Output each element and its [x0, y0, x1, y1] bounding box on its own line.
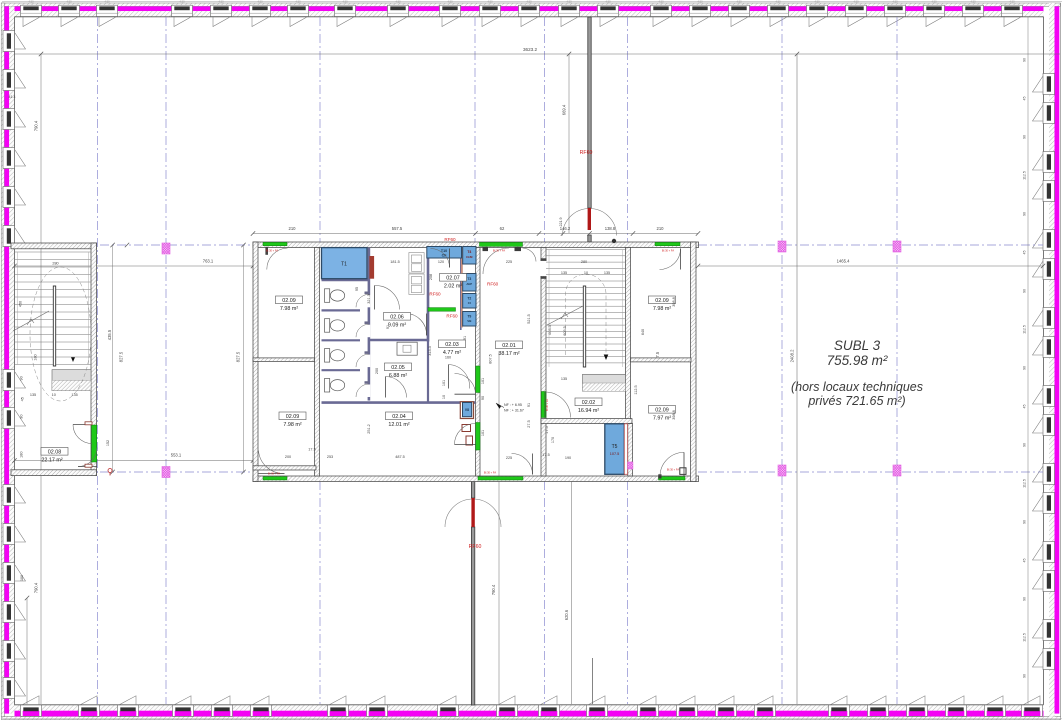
svg-text:4.50: 4.50 — [1009, 0, 1015, 4]
svg-text:90: 90 — [20, 414, 24, 418]
svg-text:4.50: 4.50 — [566, 0, 572, 4]
svg-text:45: 45 — [1023, 97, 1027, 101]
svg-text:7.98 m²: 7.98 m² — [280, 306, 298, 312]
svg-text:02.08: 02.08 — [48, 449, 62, 455]
svg-text:90: 90 — [1023, 58, 1027, 62]
svg-text:640: 640 — [641, 329, 645, 335]
svg-text:BI.30 + FA: BI.30 + FA — [484, 471, 496, 475]
svg-text:603.5: 603.5 — [563, 326, 567, 336]
svg-text:669.4: 669.4 — [562, 104, 567, 115]
svg-text:620.6: 620.6 — [564, 609, 569, 620]
svg-text:02.04: 02.04 — [392, 414, 406, 420]
svg-text:02.06: 02.06 — [390, 314, 404, 320]
svg-text:221.9: 221.9 — [559, 218, 563, 227]
svg-text:AEP: AEP — [466, 282, 472, 286]
svg-text:112.5: 112.5 — [1023, 633, 1027, 642]
svg-text:91: 91 — [527, 403, 531, 407]
svg-text:02.09: 02.09 — [655, 298, 669, 304]
svg-text:521.5: 521.5 — [527, 314, 531, 324]
svg-text:4.50: 4.50 — [931, 0, 937, 4]
svg-text:4.50: 4.50 — [257, 0, 263, 4]
svg-text:91: 91 — [386, 325, 390, 329]
svg-text:790.4: 790.4 — [491, 584, 496, 595]
svg-text:02.09: 02.09 — [282, 298, 296, 304]
svg-text:4.50: 4.50 — [395, 0, 401, 4]
svg-text:4.50: 4.50 — [658, 0, 664, 4]
svg-text:763.1: 763.1 — [203, 259, 214, 264]
svg-text:138.8: 138.8 — [605, 226, 616, 231]
svg-text:4.50: 4.50 — [295, 0, 301, 4]
svg-text:210: 210 — [289, 226, 297, 231]
svg-text:90: 90 — [20, 376, 24, 380]
svg-text:91: 91 — [463, 336, 467, 340]
svg-text:90: 90 — [1023, 674, 1027, 678]
svg-text:T5: T5 — [612, 444, 618, 450]
svg-text:RF60: RF60 — [429, 292, 441, 297]
svg-text:CLIM: CLIM — [466, 255, 472, 259]
svg-text:BI.30 + FA: BI.30 + FA — [667, 468, 679, 472]
svg-text:BI.30 + FA: BI.30 + FA — [493, 249, 505, 253]
svg-text:(hors locaux techniques: (hors locaux techniques — [791, 380, 923, 394]
svg-text:90: 90 — [1023, 289, 1027, 293]
svg-text:107.5: 107.5 — [610, 452, 620, 456]
svg-text:101: 101 — [481, 430, 485, 436]
svg-text:02.03: 02.03 — [445, 342, 459, 348]
svg-text:4.50: 4.50 — [775, 0, 781, 4]
svg-text:200: 200 — [375, 368, 379, 374]
svg-text:RF60: RF60 — [446, 314, 458, 319]
svg-text:4.50: 4.50 — [28, 0, 34, 4]
svg-text:398.8: 398.8 — [672, 297, 676, 307]
svg-text:135: 135 — [71, 393, 77, 397]
svg-text:251.2: 251.2 — [367, 424, 371, 434]
svg-text:603.5: 603.5 — [548, 325, 552, 335]
svg-text:487.5: 487.5 — [395, 455, 405, 459]
svg-text:2.02 m²: 2.02 m² — [444, 284, 462, 290]
svg-text:313.3: 313.3 — [428, 346, 432, 356]
svg-text:17.5: 17.5 — [545, 426, 549, 433]
svg-text:1465.4: 1465.4 — [837, 259, 850, 264]
svg-text:90: 90 — [1023, 366, 1027, 370]
svg-text:4.50: 4.50 — [66, 0, 72, 4]
svg-text:553.1: 553.1 — [171, 453, 182, 458]
svg-text:135: 135 — [604, 271, 610, 275]
svg-text:T4: T4 — [467, 250, 471, 254]
svg-text:180: 180 — [34, 354, 38, 360]
svg-text:4.50: 4.50 — [526, 0, 532, 4]
svg-text:557.5: 557.5 — [392, 226, 403, 231]
svg-text:95: 95 — [355, 287, 359, 291]
svg-text:135: 135 — [561, 377, 567, 381]
svg-text:10: 10 — [442, 395, 446, 399]
svg-text:4.50: 4.50 — [179, 0, 185, 4]
svg-text:4.50: 4.50 — [970, 0, 976, 4]
svg-text:181.5: 181.5 — [390, 260, 400, 264]
svg-text:7.98 m²: 7.98 m² — [653, 306, 671, 312]
svg-text:4.50: 4.50 — [736, 0, 742, 4]
svg-text:02.02: 02.02 — [582, 400, 596, 406]
svg-text:T1: T1 — [341, 262, 347, 268]
svg-text:807.5: 807.5 — [489, 354, 493, 364]
svg-text:135: 135 — [30, 393, 36, 397]
svg-text:62: 62 — [500, 226, 505, 231]
svg-text:7.98 m²: 7.98 m² — [283, 422, 301, 428]
svg-text:225: 225 — [506, 456, 512, 460]
svg-text:02.05: 02.05 — [391, 365, 405, 371]
svg-text:90: 90 — [481, 396, 485, 400]
svg-text:02.01: 02.01 — [502, 343, 516, 349]
svg-text:4.50: 4.50 — [447, 0, 453, 4]
svg-text:CI: CI — [468, 301, 471, 305]
svg-text:BI.30 + FA: BI.30 + FA — [662, 249, 674, 253]
svg-text:4.50: 4.50 — [697, 0, 703, 4]
svg-text:RF60: RF60 — [444, 237, 456, 242]
svg-text:SUBL 3: SUBL 3 — [834, 338, 881, 353]
svg-text:T2: T2 — [467, 297, 471, 301]
svg-text:NF : + 6.95: NF : + 6.95 — [504, 403, 522, 407]
svg-text:101: 101 — [481, 378, 485, 384]
svg-text:41.4: 41.4 — [9, 95, 16, 99]
svg-text:45: 45 — [1023, 559, 1027, 563]
svg-text:6.88 m²: 6.88 m² — [389, 373, 407, 379]
svg-text:112.5: 112.5 — [634, 385, 638, 394]
svg-text:BI.30 + FA: BI.30 + FA — [266, 249, 278, 253]
svg-text:16.94 m²: 16.94 m² — [578, 408, 599, 414]
svg-text:V8: V8 — [465, 408, 469, 412]
svg-text:755.98 m²: 755.98 m² — [827, 353, 888, 368]
svg-text:12.01 m²: 12.01 m² — [388, 422, 409, 428]
svg-text:160: 160 — [445, 356, 451, 360]
svg-text:135: 135 — [561, 271, 567, 275]
svg-text:45: 45 — [1023, 405, 1027, 409]
svg-text:7.97 m²: 7.97 m² — [653, 416, 671, 422]
svg-text:90: 90 — [1023, 443, 1027, 447]
svg-text:4.50: 4.50 — [104, 0, 110, 4]
svg-text:827.5: 827.5 — [119, 351, 124, 362]
svg-text:90: 90 — [1023, 597, 1027, 601]
svg-text:280: 280 — [52, 262, 58, 266]
svg-text:90: 90 — [1023, 135, 1027, 139]
svg-text:10: 10 — [52, 393, 56, 397]
svg-text:200: 200 — [285, 455, 291, 459]
svg-text:827.5: 827.5 — [236, 351, 241, 362]
svg-text:17.5: 17.5 — [542, 453, 549, 457]
svg-text:02.09: 02.09 — [655, 407, 669, 413]
svg-text:RF60: RF60 — [580, 150, 593, 156]
svg-text:450: 450 — [19, 301, 23, 307]
svg-text:120: 120 — [438, 260, 444, 264]
svg-text:17.5: 17.5 — [308, 448, 315, 452]
svg-text:BI.30 + FA: BI.30 + FA — [268, 472, 280, 476]
svg-text:253: 253 — [327, 455, 333, 459]
svg-text:152: 152 — [106, 440, 110, 446]
svg-text:45: 45 — [21, 397, 25, 401]
svg-text:4.50: 4.50 — [342, 0, 348, 4]
svg-text:190: 190 — [565, 456, 571, 460]
svg-text:2408.2: 2408.2 — [790, 349, 795, 362]
svg-text:02.09: 02.09 — [286, 414, 300, 420]
svg-text:321.3: 321.3 — [367, 294, 371, 304]
svg-text:4.50: 4.50 — [814, 0, 820, 4]
svg-text:27.5: 27.5 — [527, 420, 531, 427]
svg-text:45: 45 — [1023, 251, 1027, 255]
svg-text:02.07: 02.07 — [446, 275, 460, 281]
svg-text:435.5: 435.5 — [107, 329, 112, 340]
svg-text:22.17 m²: 22.17 m² — [41, 458, 62, 464]
svg-text:180: 180 — [20, 575, 24, 581]
svg-text:38.17 m²: 38.17 m² — [498, 351, 519, 357]
svg-text:170: 170 — [551, 437, 555, 443]
svg-text:4.50: 4.50 — [853, 0, 859, 4]
svg-text:T3: T3 — [467, 277, 471, 281]
svg-text:RF60: RF60 — [487, 282, 499, 287]
svg-text:90: 90 — [1023, 520, 1027, 524]
svg-text:T9: T9 — [467, 315, 471, 319]
svg-text:790.4: 790.4 — [34, 582, 39, 593]
svg-text:4.50: 4.50 — [892, 0, 898, 4]
svg-text:112.5: 112.5 — [1023, 479, 1027, 488]
svg-text:112.5: 112.5 — [1023, 171, 1027, 180]
svg-text:RF60: RF60 — [469, 544, 482, 550]
svg-text:790.4: 790.4 — [34, 120, 39, 131]
svg-text:210: 210 — [657, 226, 665, 231]
svg-text:9.09 m²: 9.09 m² — [388, 323, 406, 329]
svg-text:4.50: 4.50 — [487, 0, 493, 4]
svg-text:privés 721.65 m²): privés 721.65 m²) — [807, 394, 905, 408]
svg-text:BI.30 + FA: BI.30 + FA — [545, 399, 549, 411]
svg-text:225: 225 — [506, 260, 512, 264]
svg-text:208: 208 — [429, 274, 433, 280]
svg-text:4.50: 4.50 — [218, 0, 224, 4]
svg-text:4.50: 4.50 — [605, 0, 611, 4]
svg-text:101: 101 — [442, 380, 446, 386]
svg-text:90: 90 — [1023, 212, 1027, 216]
svg-text:112.5: 112.5 — [1023, 325, 1027, 334]
svg-text:180: 180 — [20, 452, 24, 458]
svg-text:3623.2: 3623.2 — [523, 47, 537, 52]
svg-text:398.8: 398.8 — [672, 410, 676, 420]
svg-text:NF : + 31.67: NF : + 31.67 — [504, 409, 524, 413]
